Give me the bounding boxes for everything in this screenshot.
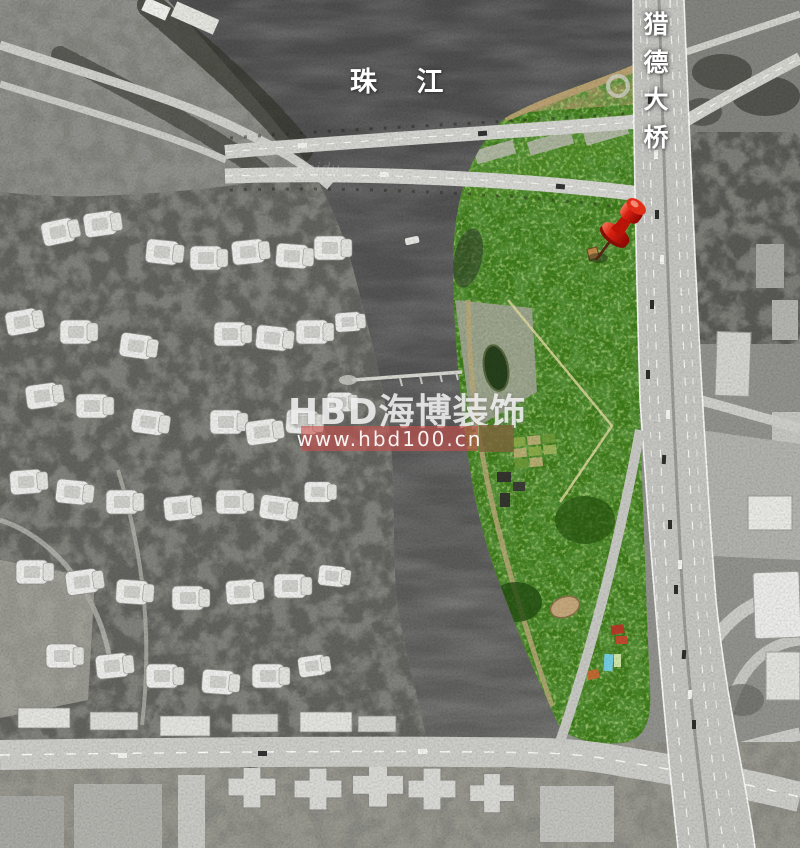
watermark-url: www.hbd100.cn bbox=[297, 427, 483, 451]
watermark-url-band: www.hbd100.cn bbox=[301, 426, 478, 451]
satellite-map: Baidu 珠 江 猎德大桥 HBD海博装饰 www.hbd100.cn bbox=[0, 0, 800, 848]
river-label: 珠 江 bbox=[350, 60, 458, 99]
watermark-seal bbox=[479, 425, 514, 452]
imagery-attribution: Baidu bbox=[296, 161, 341, 177]
bridge-label: 猎德大桥 bbox=[640, 6, 672, 156]
